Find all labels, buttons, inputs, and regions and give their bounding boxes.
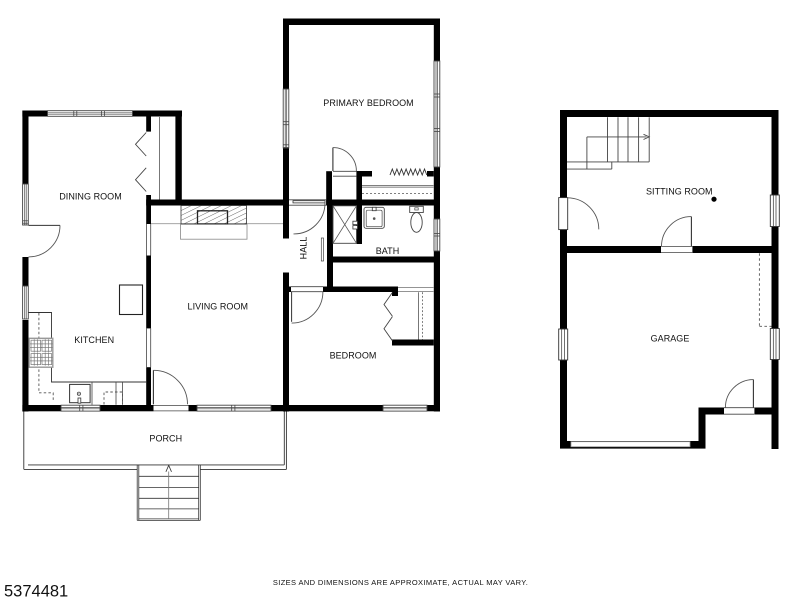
svg-text:SITTING ROOM: SITTING ROOM [646, 187, 713, 197]
svg-text:KITCHEN: KITCHEN [74, 335, 114, 345]
svg-text:SIZES AND DIMENSIONS ARE APPRO: SIZES AND DIMENSIONS ARE APPROXIMATE, AC… [273, 578, 528, 587]
svg-text:PRIMARY BEDROOM: PRIMARY BEDROOM [323, 98, 413, 108]
svg-text:LIVING ROOM: LIVING ROOM [188, 302, 249, 312]
svg-text:5374481: 5374481 [4, 583, 68, 601]
svg-text:DINING ROOM: DINING ROOM [59, 192, 122, 202]
svg-text:BEDROOM: BEDROOM [330, 351, 377, 361]
svg-text:GARAGE: GARAGE [651, 334, 690, 344]
svg-text:BATH: BATH [376, 246, 400, 256]
svg-text:HALL: HALL [299, 237, 309, 260]
svg-text:PORCH: PORCH [149, 434, 182, 444]
